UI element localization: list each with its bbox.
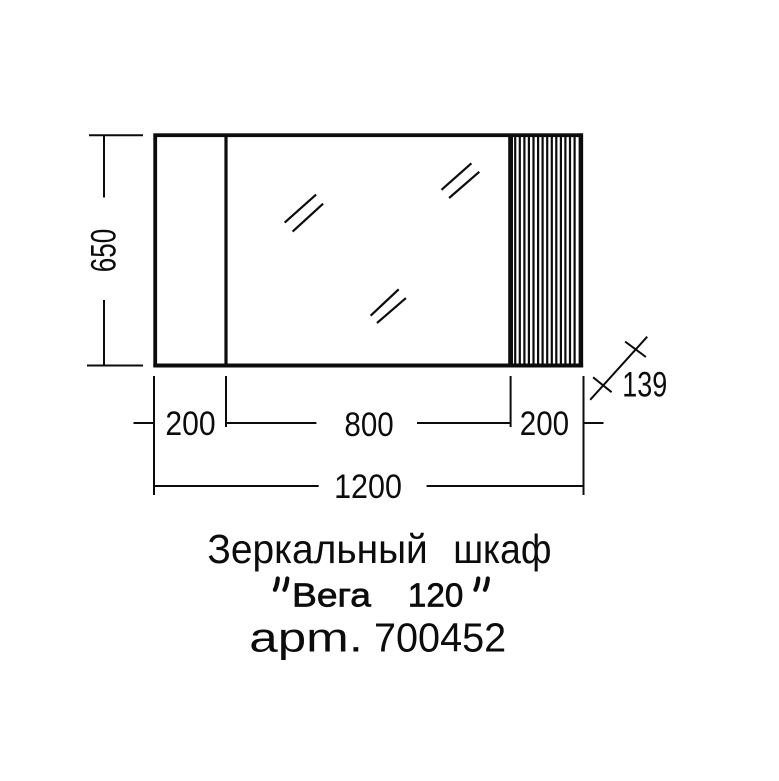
svg-text:Зеркальный: Зеркальный: [207, 526, 427, 572]
svg-text:800: 800: [344, 406, 393, 444]
svg-text:120: 120: [408, 578, 463, 615]
svg-text:1200: 1200: [334, 468, 402, 506]
svg-text:700452: 700452: [374, 615, 506, 661]
svg-text:200: 200: [520, 405, 569, 443]
svg-text:шкаф: шкаф: [453, 526, 551, 572]
svg-text:Вега: Вега: [292, 578, 371, 615]
svg-text:139: 139: [622, 366, 667, 405]
svg-text:650: 650: [83, 229, 123, 273]
svg-text:арm.: арm.: [249, 615, 363, 661]
svg-text:200: 200: [165, 405, 215, 443]
